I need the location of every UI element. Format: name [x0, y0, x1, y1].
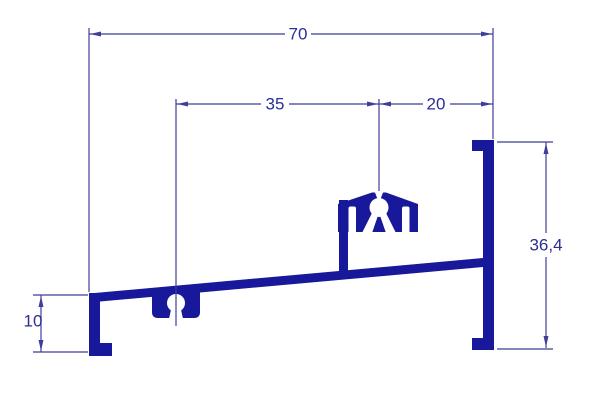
- arrow-36-4-bottom: [544, 336, 549, 347]
- arrow-70-right: [481, 32, 492, 37]
- label-left-height: 10: [24, 311, 43, 330]
- base-rail: [89, 258, 483, 303]
- top-clip-left-slot: [349, 207, 357, 234]
- profile-cutouts: [167, 193, 410, 320]
- profile-drawing: 70 35 20 36,4 10: [0, 0, 600, 400]
- label-right-height: 36,4: [529, 235, 562, 254]
- arrow-10-top: [39, 296, 44, 307]
- arrow-36-4-top: [544, 143, 549, 154]
- arrow-70-left: [90, 32, 101, 37]
- arrow-35-left: [177, 102, 188, 107]
- dimension-annotations: [33, 28, 553, 352]
- arrow-20-left: [380, 102, 391, 107]
- dimension-labels: 70 35 20 36,4 10: [24, 24, 563, 330]
- label-total-width: 70: [289, 24, 308, 43]
- label-left-span: 35: [266, 94, 285, 113]
- right-post: [472, 140, 494, 350]
- left-post: [89, 293, 112, 356]
- arrow-35-right: [367, 102, 378, 107]
- profile-shape: [89, 140, 494, 356]
- arrow-10-bottom: [39, 340, 44, 351]
- top-clip-right-slot: [402, 207, 410, 234]
- technical-drawing-canvas: 70 35 20 36,4 10: [0, 0, 600, 400]
- arrow-20-right: [481, 102, 492, 107]
- dimension-arrows: [39, 32, 549, 352]
- label-right-span: 20: [427, 94, 446, 113]
